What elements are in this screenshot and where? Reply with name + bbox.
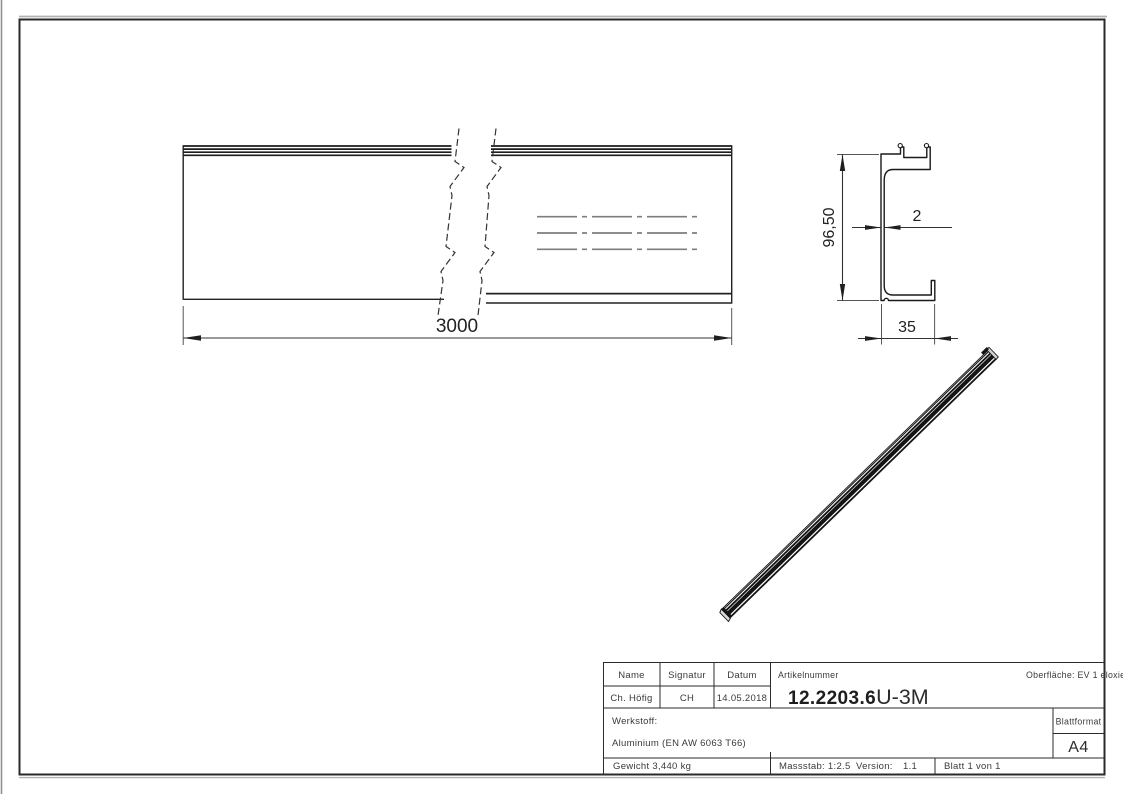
gewicht-label: Gewicht 3,440 kg (613, 761, 691, 772)
section-profile-outline (881, 147, 935, 301)
arrowhead-left (183, 335, 201, 341)
massstab-label: Massstab: 1:2.5 (779, 761, 851, 772)
tb-value-name: Ch. Höfig (610, 693, 652, 704)
oberflaeche-label: Oberfläche: EV 1 eloxiert (1026, 670, 1123, 680)
arrowhead-up (840, 155, 845, 172)
tb-header-name: Name (618, 670, 645, 681)
dim-length-label: 3000 (436, 316, 478, 337)
center-lines (537, 217, 702, 250)
version-label: Version: (856, 761, 893, 772)
werkstoff-value: Aluminium (EN AW 6063 T66) (612, 738, 746, 749)
front-view: 3000 (183, 129, 732, 346)
arrowhead-left (885, 225, 901, 230)
drawing-sheet: 3000 96,50 2 (0, 0, 1123, 794)
front-view-outline (183, 145, 732, 303)
tb-value-datum: 14.05.2018 (717, 693, 768, 704)
drawing-canvas: 3000 96,50 2 (0, 0, 1123, 794)
artikelnummer-value-bold: 12.2203.6 (788, 688, 876, 709)
artikelnummer-value: 12.2203.6U-3M (788, 685, 929, 709)
dim-width-label: 35 (898, 319, 916, 336)
title-block: Name Signatur Datum Ch. Höfig CH 14.05.2… (604, 663, 1123, 775)
length-dimension: 3000 (183, 306, 732, 345)
width-dimension: 35 (858, 304, 958, 345)
profile-hook-detail (924, 144, 928, 148)
dim-thickness-label: 2 (913, 208, 922, 225)
tb-header-signatur: Signatur (668, 670, 706, 681)
arrowhead-right (714, 335, 732, 341)
arrowhead-inward-left (865, 336, 882, 341)
artikelnummer-value-suffix: U-3M (876, 685, 929, 709)
arrowhead-right (865, 225, 881, 230)
blatt-label: Blatt 1 von 1 (944, 761, 1001, 772)
werkstoff-label: Werkstoff: (612, 716, 657, 727)
version-value: 1.1 (903, 761, 917, 772)
tb-value-signatur: CH (680, 693, 694, 704)
thickness-dimension: 2 (852, 208, 952, 230)
break-lines (438, 129, 501, 316)
front-view-top-edge-lines (183, 146, 732, 155)
iso-profile-body (721, 349, 997, 618)
blattformat-value: A4 (1068, 739, 1089, 756)
arrowhead-down (840, 284, 845, 301)
artikelnummer-label: Artikelnummer (778, 670, 839, 680)
arrowhead-inward-right (935, 336, 951, 341)
iso-profile-highlights (724, 351, 994, 614)
profile-hook-detail (898, 144, 902, 148)
section-view: 96,50 2 35 (821, 144, 958, 345)
blattformat-label: Blattformat (1056, 717, 1102, 727)
dim-height-label: 96,50 (821, 207, 838, 247)
tb-header-datum: Datum (727, 670, 756, 681)
iso-view (717, 346, 1000, 621)
